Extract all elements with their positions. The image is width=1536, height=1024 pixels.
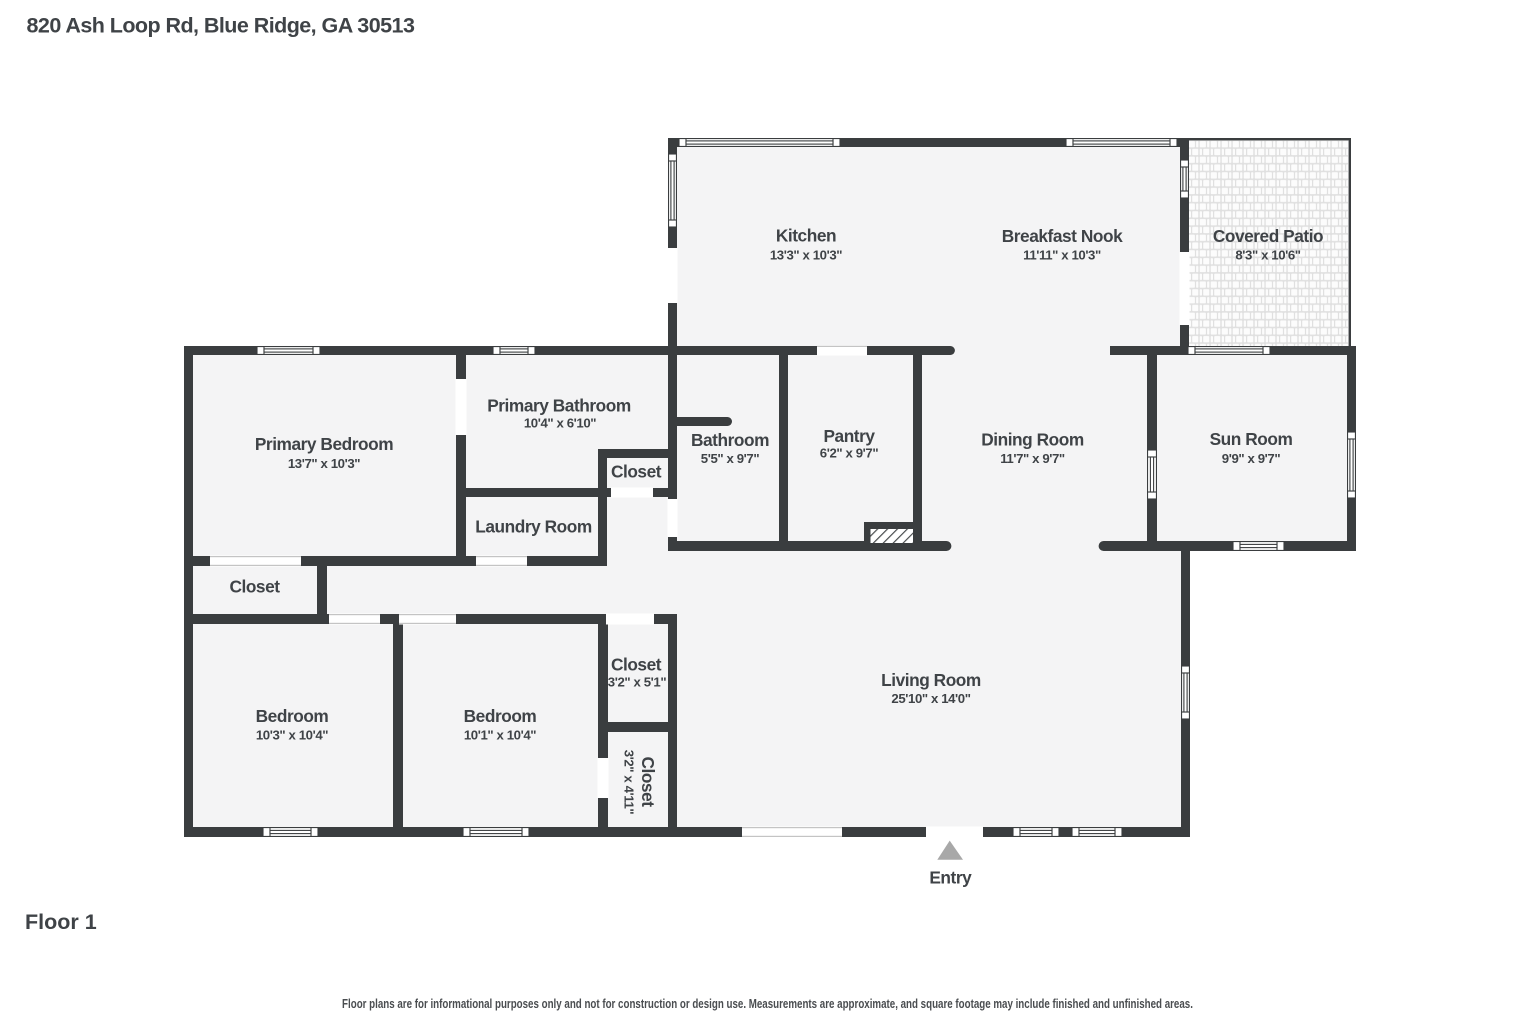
svg-text:Floor plans are for informatio: Floor plans are for informational purpos… [342, 998, 1193, 1011]
svg-text:Bedroom: Bedroom [464, 706, 537, 726]
svg-text:Breakfast Nook: Breakfast Nook [1002, 226, 1123, 246]
svg-text:13'7" x 10'3": 13'7" x 10'3" [288, 456, 360, 471]
svg-text:8'3" x 10'6": 8'3" x 10'6" [1235, 248, 1300, 263]
svg-text:Laundry Room: Laundry Room [475, 517, 592, 537]
svg-text:13'3" x 10'3": 13'3" x 10'3" [770, 248, 842, 263]
svg-text:Pantry: Pantry [823, 426, 875, 446]
svg-text:11'7" x 9'7": 11'7" x 9'7" [1000, 451, 1065, 466]
svg-text:Closet: Closet [229, 576, 280, 596]
svg-text:Floor 1: Floor 1 [25, 910, 97, 934]
svg-text:Closet: Closet [611, 655, 662, 675]
svg-text:3'2" x 5'1": 3'2" x 5'1" [608, 675, 667, 690]
svg-text:Closet: Closet [638, 756, 658, 807]
svg-text:10'4" x 6'10": 10'4" x 6'10" [524, 415, 596, 430]
svg-text:Entry: Entry [929, 868, 972, 888]
svg-text:10'1" x 10'4": 10'1" x 10'4" [464, 728, 536, 743]
svg-text:Sun Room: Sun Room [1210, 429, 1293, 449]
svg-text:25'10" x 14'0": 25'10" x 14'0" [891, 691, 970, 706]
svg-text:11'11" x 10'3": 11'11" x 10'3" [1023, 248, 1101, 263]
svg-text:820 Ash Loop Rd, Blue Ridge, G: 820 Ash Loop Rd, Blue Ridge, GA 30513 [27, 13, 415, 37]
svg-text:Primary Bathroom: Primary Bathroom [487, 396, 631, 416]
svg-text:3'2" x 4'11": 3'2" x 4'11" [622, 750, 637, 815]
svg-text:Bathroom: Bathroom [691, 430, 769, 450]
svg-text:Kitchen: Kitchen [776, 226, 836, 246]
svg-text:Bedroom: Bedroom [256, 706, 329, 726]
svg-text:10'3" x 10'4": 10'3" x 10'4" [256, 728, 328, 743]
svg-text:5'5" x 9'7": 5'5" x 9'7" [701, 451, 760, 466]
svg-text:Covered Patio: Covered Patio [1213, 226, 1323, 246]
svg-text:Living Room: Living Room [881, 670, 981, 690]
svg-text:9'9" x 9'7": 9'9" x 9'7" [1222, 451, 1281, 466]
svg-text:Dining Room: Dining Room [981, 429, 1084, 449]
svg-text:Closet: Closet [611, 462, 662, 482]
svg-text:Primary Bedroom: Primary Bedroom [255, 434, 393, 454]
svg-text:6'2" x 9'7": 6'2" x 9'7" [820, 446, 879, 461]
